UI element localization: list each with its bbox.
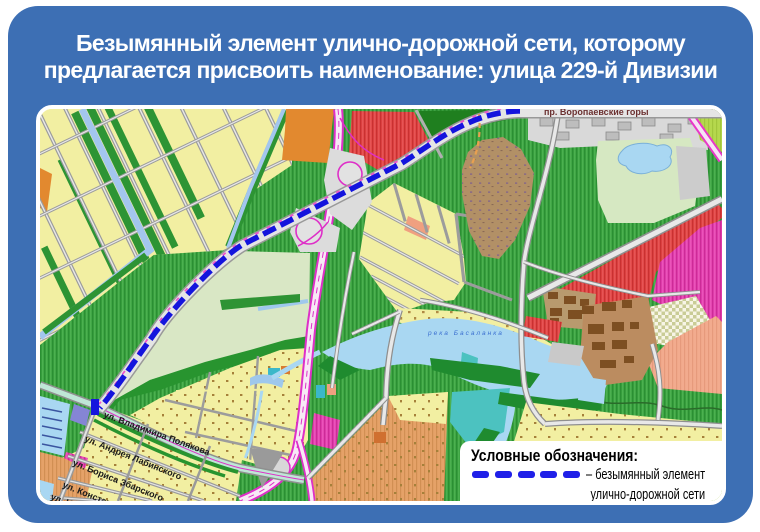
svg-text:пр. Воропаевские горы: пр. Воропаевские горы <box>544 109 649 117</box>
svg-text:река Басаланка: река Басаланка <box>427 330 504 337</box>
